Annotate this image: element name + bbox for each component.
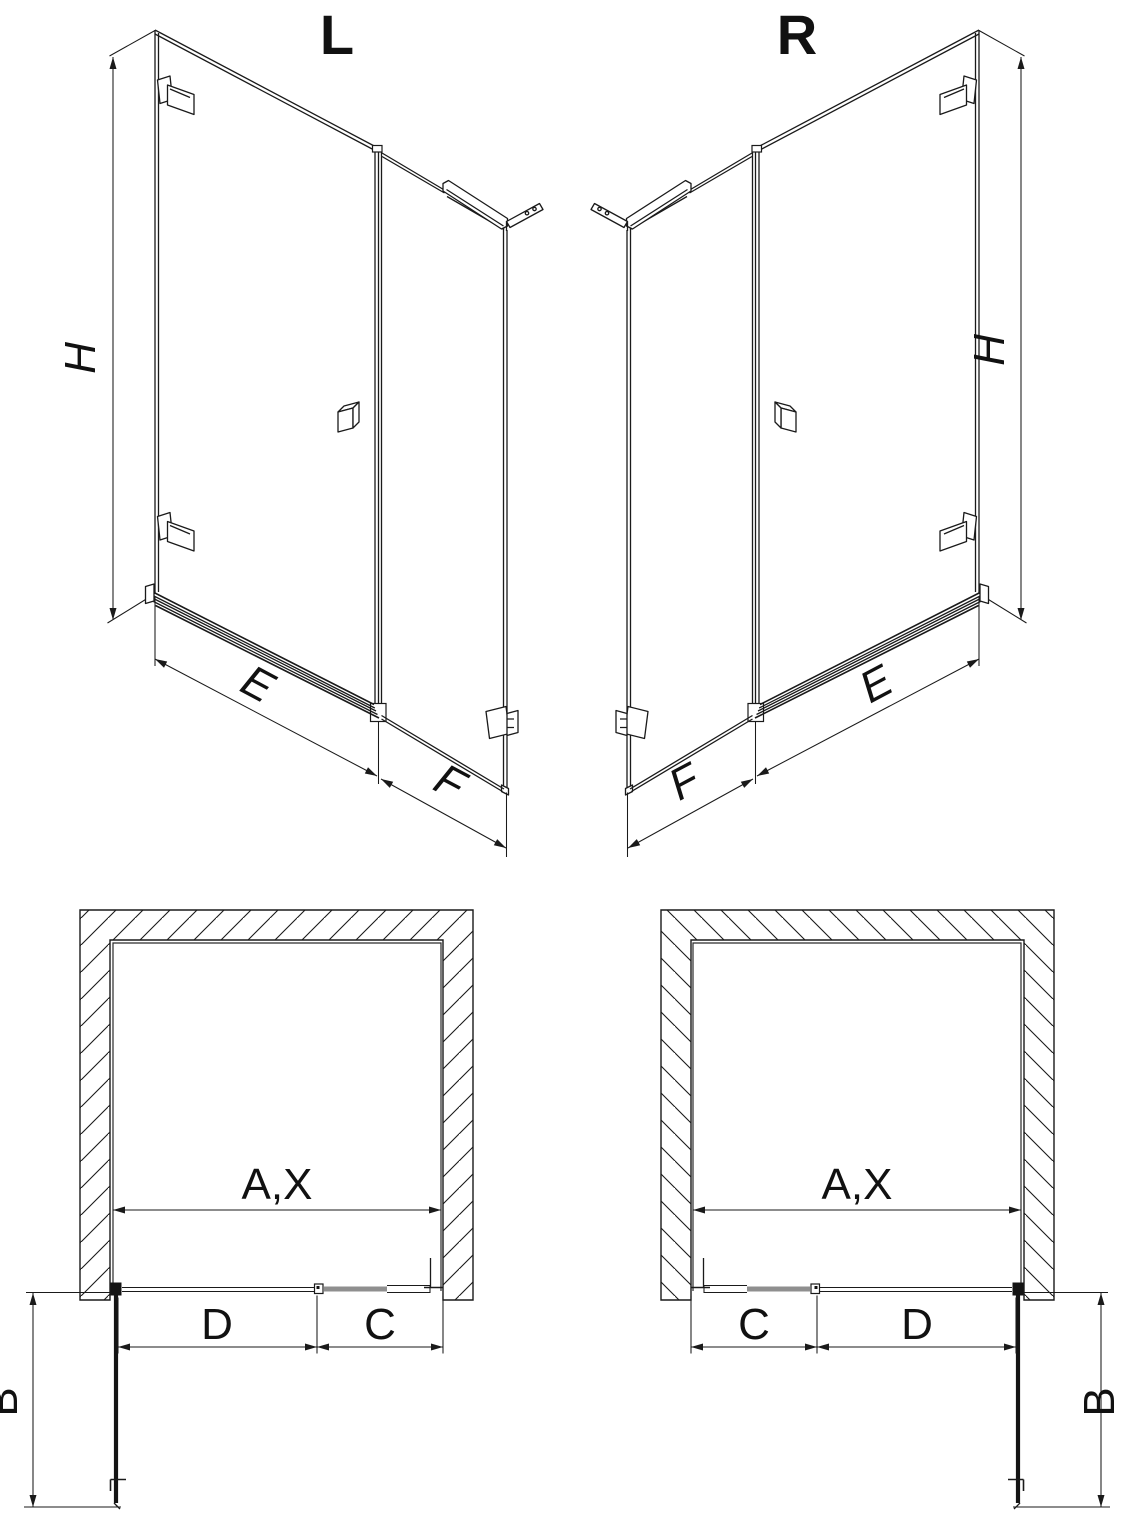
door-glass — [155, 30, 378, 594]
door-handle-knob — [338, 402, 359, 432]
wall-bracket — [507, 204, 544, 232]
wall-profile-bar — [387, 1285, 430, 1293]
iso-left-panel-width-label: F — [426, 754, 475, 811]
door-closed-projection — [122, 1288, 315, 1292]
divider-top-cap — [373, 146, 383, 153]
fixed-panel-glass — [382, 153, 509, 795]
hatched-wall — [80, 910, 473, 1300]
enclosure-outline — [113, 943, 441, 1291]
door-handle-plan — [111, 1480, 127, 1492]
plan-left-opening-label: A,X — [242, 1160, 313, 1209]
dim-height — [108, 31, 156, 624]
panel-clamp — [486, 707, 518, 739]
plan-left-panel-label: C — [364, 1300, 396, 1349]
support-bar — [443, 181, 508, 230]
plan-right-panel-label: C — [738, 1300, 770, 1349]
dim-door-open-depth — [24, 1293, 121, 1508]
iso-right-title-label: R — [777, 3, 817, 66]
plan-view-left — [24, 910, 473, 1509]
panel-joint-block — [315, 1284, 324, 1294]
iso-right-height-label: H — [965, 334, 1014, 366]
shower-door-technical-drawing-page: L R H E F H E F A,X D C B A,X C D B — [0, 0, 1134, 1516]
plan-left-depth-label: B — [0, 1387, 27, 1416]
iso-left-title-label: L — [320, 3, 354, 66]
iso-view-right — [591, 30, 1027, 857]
iso-view-left — [108, 30, 544, 857]
plan-view-right — [661, 910, 1110, 1509]
plan-right-door-label: D — [901, 1300, 933, 1349]
door-hinge-bottom — [158, 513, 195, 552]
iso-left-height-label: H — [56, 342, 105, 374]
door-hinge-top — [158, 76, 195, 115]
plan-right-opening-label: A,X — [822, 1160, 893, 1209]
rail-start-cap — [146, 584, 155, 604]
drawing-canvas: L R H E F H E F A,X D C B A,X C D B — [0, 0, 1134, 1516]
door-divider — [371, 146, 387, 722]
iso-right-panel-width-label: F — [661, 753, 710, 810]
corner-bracket-plan — [424, 1258, 443, 1288]
plan-right-depth-label: B — [1075, 1387, 1124, 1416]
plan-left-door-label: D — [201, 1300, 233, 1349]
